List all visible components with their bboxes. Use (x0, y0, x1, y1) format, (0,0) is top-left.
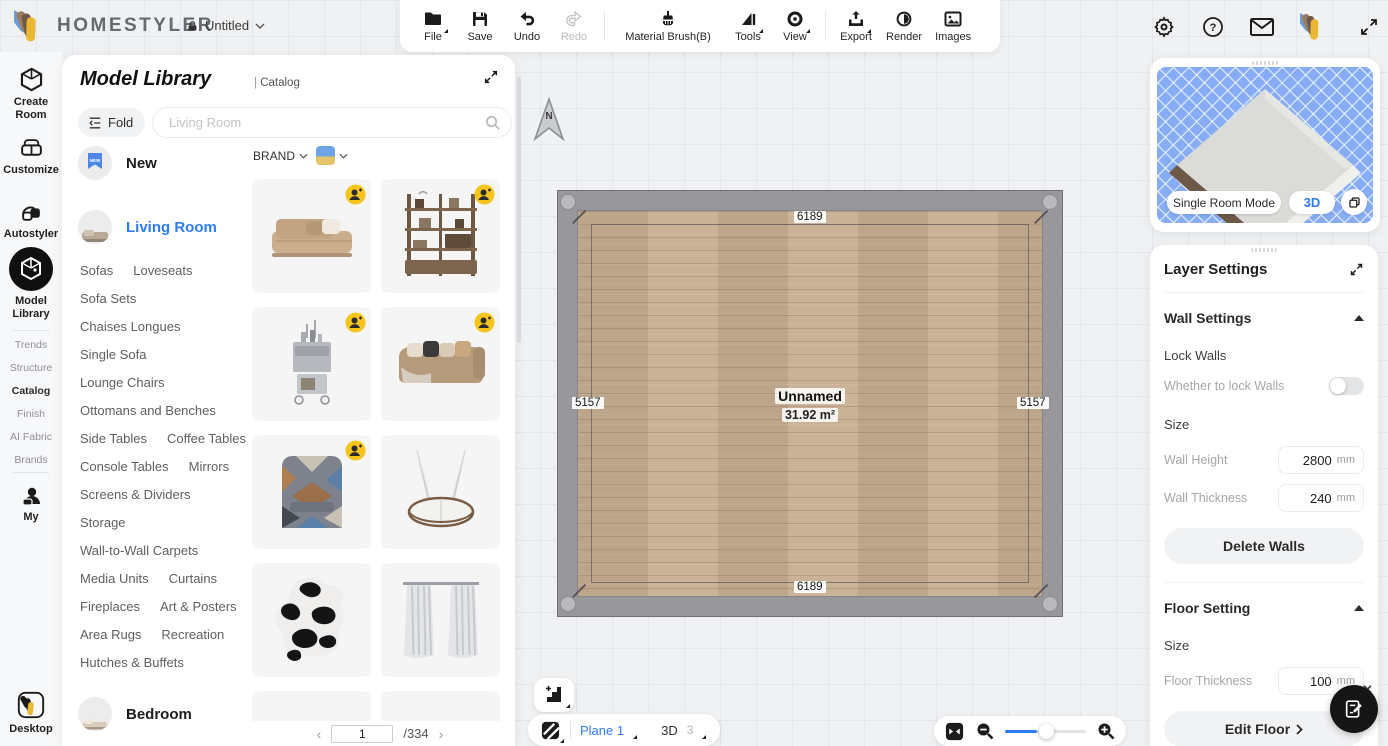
floppy-icon (470, 9, 490, 29)
category-link[interactable]: Hutches & Buffets (80, 655, 184, 670)
display-mode-icon (540, 720, 561, 741)
floor-thickness-label: Floor Thickness (1164, 674, 1252, 688)
minimap-drag-handle[interactable] (1252, 61, 1278, 65)
product-card[interactable] (381, 435, 500, 549)
room-living-room[interactable]: Living Room (78, 210, 217, 244)
fit-screen-icon (944, 721, 965, 742)
render-button[interactable]: Render (886, 9, 922, 43)
left-rail: Create Room Customize Autostyler Model L… (0, 52, 62, 746)
category-link[interactable]: Console Tables (80, 459, 169, 474)
account-avatar[interactable] (1300, 12, 1334, 42)
pagination-bar: ‹ /334 › (245, 721, 515, 746)
category-link[interactable]: Wall-to-Wall Carpets (80, 543, 198, 558)
new-section-icon: NEW (78, 146, 112, 180)
dimension-label-left[interactable]: 5157 (572, 397, 604, 409)
product-card[interactable] (252, 179, 371, 293)
ai-badge-icon (345, 184, 366, 205)
chevron-down-icon (339, 153, 348, 159)
curtains-thumb (395, 574, 487, 666)
view-button[interactable]: View (778, 9, 812, 43)
compass-north-indicator[interactable]: N (531, 97, 567, 143)
wall-corner-handle[interactable] (560, 596, 576, 612)
wall-corner-handle[interactable] (1042, 596, 1058, 612)
display-settings-button[interactable] (540, 720, 561, 741)
floor-size-heading: Size (1164, 638, 1364, 653)
search-box (152, 107, 512, 138)
pillow-sofa-thumb (393, 333, 489, 395)
wall-size-heading: Size (1164, 417, 1364, 432)
dimension-label-top[interactable]: 6189 (794, 211, 826, 223)
rail-desktop[interactable]: Desktop (0, 690, 62, 736)
minimap-3d-view[interactable]: Single Room Mode 3D (1157, 67, 1373, 223)
product-card[interactable] (381, 307, 500, 421)
svg-text:?: ? (1209, 22, 1216, 34)
undo-icon (517, 9, 537, 29)
category-link[interactable]: Media Units (80, 571, 149, 586)
next-page-button[interactable]: › (439, 726, 444, 742)
wall-thickness-input[interactable]: 240mm (1278, 484, 1364, 512)
style-filter-thumbnail (316, 146, 335, 165)
category-link[interactable]: Sofa Sets (80, 291, 136, 306)
fullscreen-icon[interactable] (1358, 16, 1380, 38)
copy-icon (1347, 195, 1362, 210)
export-button[interactable]: Export (839, 9, 873, 43)
collapse-wall-settings-icon[interactable] (1354, 315, 1364, 321)
redo-button[interactable]: Redo (557, 9, 591, 43)
product-card[interactable] (381, 563, 500, 677)
bedroom-thumb (78, 697, 112, 731)
category-link[interactable]: Area Rugs (80, 627, 141, 642)
room-area-label: 31.92 m² (782, 408, 838, 422)
zoom-slider-knob[interactable] (1039, 724, 1054, 739)
style-filter-dropdown[interactable] (316, 146, 348, 165)
category-link[interactable]: Art & Posters (160, 599, 237, 614)
plane-view-tab[interactable]: Plane 1 (580, 723, 624, 738)
svg-text:N: N (545, 111, 552, 122)
create-room-cube-icon (18, 66, 45, 93)
rail-tab-trends[interactable]: Trends (0, 334, 62, 357)
dimension-label-right[interactable]: 5157 (1017, 397, 1049, 409)
category-link[interactable]: Curtains (169, 571, 217, 586)
fold-button[interactable]: Fold (78, 108, 145, 137)
wall-settings-title: Wall Settings (1164, 310, 1251, 326)
rail-tab-finish[interactable]: Finish (0, 403, 62, 426)
3d-view-tab[interactable]: 3D (661, 723, 678, 738)
panel-breadcrumb: | Catalog (254, 77, 300, 89)
zoom-in-button[interactable] (1096, 721, 1116, 741)
search-input[interactable] (169, 115, 484, 130)
model-library-icon (8, 246, 54, 292)
toolbar-divider (825, 11, 826, 41)
rail-customize[interactable]: Customize (0, 136, 62, 177)
settings-gear-icon[interactable] (1152, 15, 1176, 39)
category-link[interactable]: Loveseats (133, 263, 192, 278)
undo-button[interactable]: Undo (510, 9, 544, 43)
lock-icon (186, 19, 199, 33)
category-link[interactable]: Storage (80, 515, 126, 530)
category-link[interactable]: Ottomans and Benches (80, 403, 216, 418)
main-toolbar: File Save Undo Redo Material Brush(B) To… (400, 0, 1000, 52)
minimap-copy-button[interactable] (1341, 189, 1367, 215)
ai-badge-icon (345, 312, 366, 333)
panel-title: Model Library (80, 68, 211, 91)
svg-text:NEW: NEW (90, 158, 101, 163)
topbar-right-icons: ? (1152, 12, 1380, 42)
feedback-fab-button[interactable] (1330, 685, 1378, 733)
category-list: SofasLoveseats Sofa Sets Chaises Longues… (80, 256, 252, 676)
export-icon (846, 9, 866, 29)
rail-sub-nav: Trends Structure Catalog Finish AI Fabri… (0, 334, 62, 472)
section-new[interactable]: NEW New (78, 146, 157, 180)
material-brush-button[interactable]: Material Brush(B) (618, 9, 718, 43)
brush-icon (658, 9, 678, 29)
minimap-card: Single Room Mode 3D (1150, 58, 1380, 232)
rail-tab-catalog[interactable]: Catalog (0, 380, 62, 403)
rail-tab-structure[interactable]: Structure (0, 357, 62, 380)
panel-drag-handle[interactable] (1251, 248, 1277, 252)
lock-walls-toggle[interactable] (1329, 377, 1364, 395)
help-icon[interactable]: ? (1201, 15, 1225, 39)
wall-height-label: Wall Height (1164, 453, 1227, 467)
rail-tab-ai-fabric[interactable]: AI Fabric (0, 426, 62, 449)
category-link[interactable]: Side Tables (80, 431, 147, 446)
living-room-thumb (78, 210, 112, 244)
fold-icon (88, 116, 102, 130)
page-total: /334 (403, 726, 428, 741)
wall-corner-handle[interactable] (560, 194, 576, 210)
floor-setting-title: Floor Setting (1164, 600, 1250, 616)
fit-to-screen-button[interactable] (944, 721, 965, 742)
category-link[interactable]: Lounge Chairs (80, 375, 165, 390)
category-link[interactable]: Mirrors (189, 459, 229, 474)
stairs-icon (543, 684, 565, 706)
file-button[interactable]: File (416, 9, 450, 43)
edit-note-icon (1343, 698, 1365, 720)
toolbar-divider (604, 11, 605, 41)
category-link[interactable]: Chaises Longues (80, 319, 180, 334)
product-grid (252, 179, 500, 746)
rail-tab-brands[interactable]: Brands (0, 449, 62, 472)
zoom-in-icon (1096, 721, 1116, 741)
redo-icon (564, 9, 584, 29)
rail-create-room[interactable]: Create Room (0, 66, 62, 121)
chevron-down-icon (299, 153, 308, 159)
save-button[interactable]: Save (463, 9, 497, 43)
ai-badge-icon (474, 184, 495, 205)
homestyler-app: HOMESTYLER Untitled File Save Undo Redo … (0, 0, 1388, 746)
panel-expand-icon[interactable] (1349, 262, 1364, 277)
set-square-icon (738, 9, 758, 29)
model-library-panel: Model Library | Catalog Fold Default NEW… (62, 55, 515, 746)
project-name: Untitled (205, 18, 249, 33)
cowhide-rug-thumb (269, 574, 355, 666)
customize-box-icon (18, 136, 45, 161)
plane-dropdown-icon[interactable] (633, 735, 637, 739)
chevron-right-icon (1296, 724, 1303, 735)
ai-badge-icon (474, 312, 495, 333)
zoom-slider[interactable] (1005, 730, 1086, 733)
layer-settings-panel: Layer Settings Wall Settings Lock Walls … (1150, 245, 1378, 746)
mail-icon[interactable] (1249, 16, 1275, 38)
product-card[interactable] (381, 179, 500, 293)
single-room-mode-button[interactable]: Single Room Mode (1167, 191, 1281, 214)
images-button[interactable]: Images (935, 9, 971, 43)
desktop-app-icon (16, 690, 46, 720)
room-name-label: Unnamed (775, 388, 845, 404)
category-link[interactable]: Recreation (161, 627, 224, 642)
ai-badge-icon (345, 440, 366, 461)
3d-view-count: 3 (687, 723, 694, 737)
room-info[interactable]: Unnamed 31.92 m² (720, 388, 900, 424)
view-switch-bar: Plane 1 3D 3 (528, 714, 720, 746)
images-icon (943, 9, 963, 29)
tufted-sofa-thumb (266, 201, 358, 271)
category-link[interactable]: Single Sofa (80, 347, 147, 362)
homestyler-logo-icon[interactable] (14, 9, 54, 44)
collapse-floor-setting-icon[interactable] (1354, 605, 1364, 611)
category-link[interactable]: Fireplaces (80, 599, 140, 614)
lock-walls-label: Whether to lock Walls (1164, 379, 1284, 393)
minimap-3d-button[interactable]: 3D (1289, 191, 1335, 214)
zoom-control-bar (934, 716, 1126, 746)
lock-walls-heading: Lock Walls (1164, 348, 1364, 363)
wall-thickness-label: Wall Thickness (1164, 491, 1247, 505)
wall-height-input[interactable]: 2800mm (1278, 446, 1364, 474)
delete-walls-button[interactable]: Delete Walls (1164, 528, 1364, 564)
filter-row: BRAND (253, 146, 348, 165)
library-scrollbar[interactable] (517, 77, 521, 343)
category-link[interactable]: Sofas (80, 263, 113, 278)
render-aperture-icon (894, 9, 914, 29)
add-level-button[interactable] (534, 678, 574, 712)
zoom-out-icon (975, 721, 995, 741)
folder-icon (423, 9, 443, 29)
project-menu[interactable]: Untitled (186, 18, 265, 33)
rail-autostyler[interactable]: Autostyler (0, 200, 62, 241)
3d-dropdown-icon[interactable] (702, 735, 706, 739)
shelving-unit-thumb (399, 190, 483, 282)
rail-model-library[interactable]: Model Library (0, 246, 62, 320)
page-number-input[interactable] (331, 725, 393, 743)
rail-my[interactable]: My (0, 484, 62, 524)
bar-cart-thumb (277, 318, 347, 410)
category-link[interactable]: Coffee Tables (167, 431, 246, 446)
dimension-label-bottom[interactable]: 6189 (794, 581, 826, 593)
view-ring-icon (785, 9, 805, 29)
product-card[interactable] (252, 435, 371, 549)
hanging-swing-thumb (395, 446, 487, 538)
layer-settings-title: Layer Settings (1164, 261, 1267, 278)
product-card[interactable] (252, 563, 371, 677)
zoom-out-button[interactable] (975, 721, 995, 741)
tools-button[interactable]: Tools (731, 9, 765, 43)
wall-corner-handle[interactable] (1042, 194, 1058, 210)
search-icon[interactable] (484, 114, 501, 131)
room-bedroom[interactable]: Bedroom (78, 697, 192, 731)
person-icon (18, 484, 44, 508)
prev-page-button[interactable]: ‹ (317, 726, 322, 742)
panel-expand-icon[interactable] (483, 69, 499, 85)
chevron-down-icon (255, 23, 265, 29)
category-link[interactable]: Screens & Dividers (80, 487, 191, 502)
brand-filter-dropdown[interactable]: BRAND (253, 149, 308, 163)
autostyler-icon (18, 200, 45, 225)
product-card[interactable] (252, 307, 371, 421)
patterned-armchair-thumb (270, 446, 354, 538)
